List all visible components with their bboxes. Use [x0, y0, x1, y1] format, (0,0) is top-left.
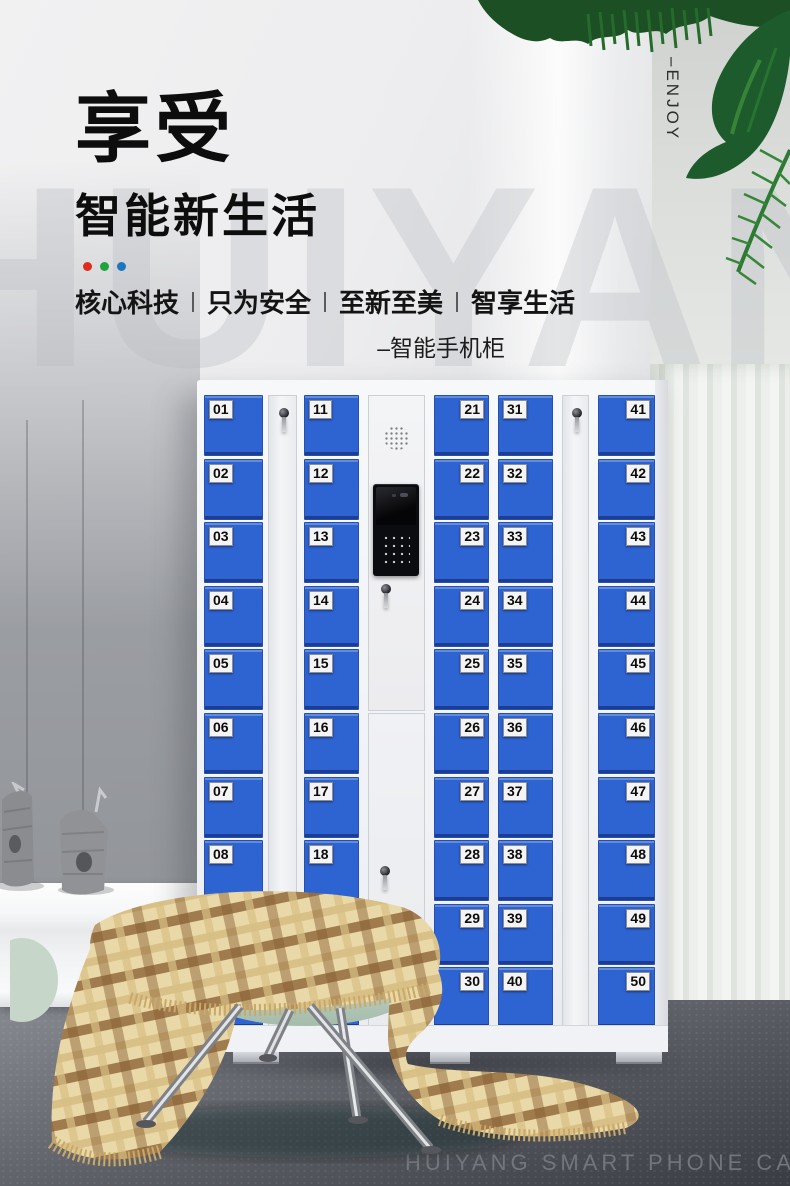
locker-number: 13	[309, 527, 333, 546]
product-caption: –智能手机柜	[75, 329, 505, 363]
locker-door-45: 45	[598, 649, 655, 710]
speaker-grille-icon	[384, 426, 410, 450]
locker-door-11: 11	[304, 395, 359, 456]
curtain	[650, 364, 790, 1036]
locker-door-44: 44	[598, 586, 655, 647]
locker-number: 18	[309, 845, 333, 864]
locker-number: 26	[460, 718, 484, 737]
locker-door-13: 13	[304, 522, 359, 583]
red-dot	[83, 262, 92, 271]
tagline: 核心科技只为安全至新至美智享生活	[75, 283, 575, 320]
tagline-item: 只为安全	[207, 283, 311, 320]
blanket-tail	[388, 940, 639, 1136]
key-lock-icon	[380, 866, 390, 876]
fern-stem	[738, 150, 790, 272]
locker-door-24: 24	[434, 586, 489, 647]
locker-door-27: 27	[434, 777, 489, 838]
intercom-screen	[376, 487, 416, 525]
locker-door-02: 02	[204, 459, 263, 520]
tagline-item: 至新至美	[339, 283, 443, 320]
locker-number: 12	[309, 464, 333, 483]
separator	[192, 292, 194, 312]
locker-door-47: 47	[598, 777, 655, 838]
locker-door-22: 22	[434, 459, 489, 520]
key-lock-icon	[572, 408, 582, 418]
locker-number: 15	[309, 654, 333, 673]
locker-door-34: 34	[498, 586, 553, 647]
locker-number: 14	[309, 591, 333, 610]
locker-number: 01	[209, 400, 233, 419]
key-lock-icon	[381, 584, 391, 594]
camera-lens-icon	[400, 493, 408, 497]
locker-number: 41	[626, 400, 650, 419]
silver-twig	[96, 790, 106, 812]
locker-number: 34	[503, 591, 527, 610]
locker-number: 11	[309, 400, 332, 419]
locker-door-12: 12	[304, 459, 359, 520]
locker-number: 38	[503, 845, 527, 864]
locker-door-42: 42	[598, 459, 655, 520]
intercom-unit	[373, 484, 419, 576]
locker-door-36: 36	[498, 713, 553, 774]
locker-door-16: 16	[304, 713, 359, 774]
locker-number: 22	[460, 464, 484, 483]
stool-with-blanket	[10, 880, 670, 1175]
locker-door-43: 43	[598, 522, 655, 583]
locker-number: 36	[503, 718, 527, 737]
key-icon	[282, 417, 286, 432]
locker-door-05: 05	[204, 649, 263, 710]
locker-number: 02	[209, 464, 233, 483]
locker-number: 47	[626, 782, 650, 801]
poster-scene: HUIYANG HUIYANG SMART PHONE CABINET 享受 智…	[0, 0, 790, 1186]
locker-door-01: 01	[204, 395, 263, 456]
mint-pillow	[10, 938, 58, 1022]
key-lock-icon	[279, 408, 289, 418]
locker-number: 06	[209, 718, 233, 737]
locker-number: 46	[626, 718, 650, 737]
separator	[456, 292, 458, 312]
locker-number: 42	[626, 464, 650, 483]
locker-number: 32	[503, 464, 527, 483]
locker-number: 21	[460, 400, 484, 419]
locker-door-41: 41	[598, 395, 655, 456]
locker-door-35: 35	[498, 649, 553, 710]
key-icon	[575, 417, 579, 432]
locker-number: 31	[503, 400, 527, 419]
locker-door-07: 07	[204, 777, 263, 838]
locker-door-25: 25	[434, 649, 489, 710]
locker-door-03: 03	[204, 522, 263, 583]
blue-dot	[117, 262, 126, 271]
control-door	[368, 395, 425, 711]
locker-number: 05	[209, 654, 233, 673]
locker-number: 17	[309, 782, 333, 801]
locker-number: 44	[626, 591, 650, 610]
led-icon	[392, 494, 396, 497]
tagline-item: 智享生活	[471, 283, 575, 320]
locker-door-37: 37	[498, 777, 553, 838]
locker-number: 16	[309, 718, 333, 737]
palm-leaves	[460, 0, 790, 285]
locker-door-17: 17	[304, 777, 359, 838]
locker-number: 07	[209, 782, 233, 801]
locker-door-21: 21	[434, 395, 489, 456]
monstera-leaf	[686, 10, 790, 179]
locker-door-15: 15	[304, 649, 359, 710]
locker-number: 37	[503, 782, 527, 801]
locker-door-14: 14	[304, 586, 359, 647]
locker-number: 28	[460, 845, 484, 864]
locker-number: 24	[460, 591, 484, 610]
locker-door-32: 32	[498, 459, 553, 520]
locker-number: 25	[460, 654, 484, 673]
locker-number: 35	[503, 654, 527, 673]
locker-number: 23	[460, 527, 484, 546]
separator	[324, 292, 326, 312]
tagline-item: 核心科技	[75, 283, 179, 320]
locker-door-04: 04	[204, 586, 263, 647]
locker-door-26: 26	[434, 713, 489, 774]
locker-number: 33	[503, 527, 527, 546]
locker-door-23: 23	[434, 522, 489, 583]
key-icon	[384, 593, 388, 608]
locker-number: 08	[209, 845, 233, 864]
locker-number: 04	[209, 591, 233, 610]
locker-door-33: 33	[498, 522, 553, 583]
locker-number: 45	[626, 654, 650, 673]
palm-leaf-top	[478, 0, 790, 44]
keypad	[382, 534, 410, 568]
locker-door-31: 31	[498, 395, 553, 456]
locker-door-46: 46	[598, 713, 655, 774]
green-dot	[100, 262, 109, 271]
locker-number: 03	[209, 527, 233, 546]
locker-door-06: 06	[204, 713, 263, 774]
locker-number: 43	[626, 527, 650, 546]
locker-number: 48	[626, 845, 650, 864]
locker-number: 27	[460, 782, 484, 801]
